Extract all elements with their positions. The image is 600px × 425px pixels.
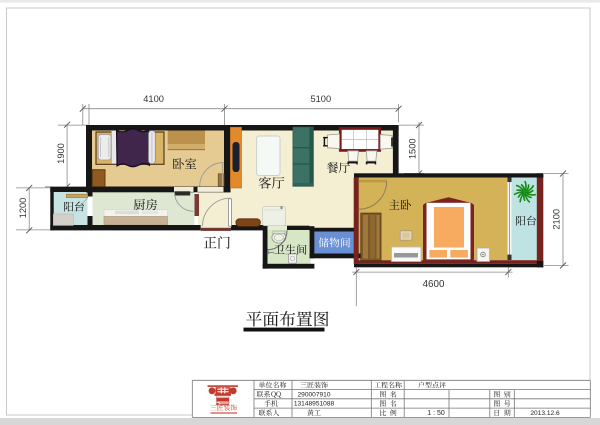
svg-text:1500: 1500: [408, 138, 418, 159]
svg-text:1900: 1900: [56, 143, 66, 164]
svg-text:1200: 1200: [18, 198, 28, 219]
svg-text:4100: 4100: [143, 94, 164, 104]
svg-text:2100: 2100: [552, 209, 562, 230]
svg-text:13148951088: 13148951088: [294, 401, 335, 408]
svg-text:2013.12.6: 2013.12.6: [530, 410, 560, 417]
svg-text:4600: 4600: [423, 279, 445, 290]
svg-text:QQ: QQ: [271, 391, 281, 399]
svg-text:5100: 5100: [310, 94, 331, 104]
svg-text:1 : 50: 1 : 50: [427, 410, 445, 417]
svg-text:290007910: 290007910: [297, 392, 330, 399]
